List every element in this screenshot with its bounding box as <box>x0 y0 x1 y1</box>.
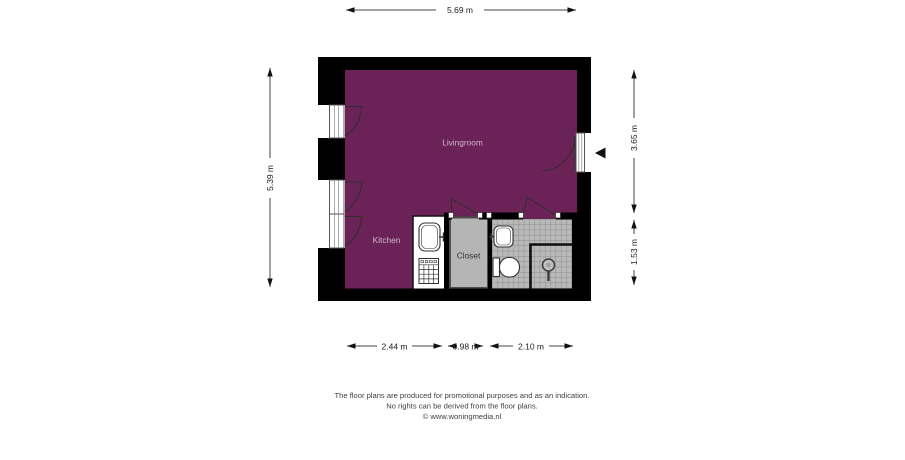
closet-label: Closet <box>457 251 481 261</box>
dimension-right-upper: 3.65 m <box>629 70 639 213</box>
footer-disclaimer: The floor plans are produced for promoti… <box>335 391 590 421</box>
floorplan-canvas: Livingroom Kitchen Closet 5.69 m 5.39 m … <box>0 0 905 460</box>
stove-icon <box>419 259 439 284</box>
toilet-icon <box>493 258 520 278</box>
dimension-bottom-right-label: 2.10 m <box>518 342 544 352</box>
wall-right-lower <box>577 172 591 301</box>
dimension-bottom-left-label: 2.44 m <box>382 342 408 352</box>
floorplan-page: Livingroom Kitchen Closet 5.69 m 5.39 m … <box>0 0 905 460</box>
dimension-right-upper-label: 3.65 m <box>629 125 639 151</box>
kitchen-counter <box>413 216 446 290</box>
kitchen-label: Kitchen <box>373 235 401 245</box>
bathroom <box>489 219 572 289</box>
wall-left-a <box>318 57 345 105</box>
livingroom-label: Livingroom <box>442 138 483 148</box>
dimension-bottom-middle: 0.98 m <box>448 342 483 352</box>
dimension-left: 5.39 m <box>265 68 275 287</box>
wall-top <box>318 57 591 70</box>
wall-left-b <box>318 138 345 180</box>
dimension-top-label: 5.69 m <box>447 5 473 15</box>
entrance-arrow-icon <box>595 148 606 159</box>
footer-line-2: No rights can be derived from the floor … <box>386 402 538 411</box>
footer-copyright: © www.woningmedia.nl <box>423 412 502 421</box>
dimension-left-label: 5.39 m <box>265 165 275 191</box>
dimension-top: 5.69 m <box>346 5 576 15</box>
dimension-bottom-left: 2.44 m <box>347 342 442 352</box>
footer-line-1: The floor plans are produced for promoti… <box>335 391 590 400</box>
dimension-bottom-right: 2.10 m <box>490 342 573 352</box>
wall-bottom <box>318 289 591 302</box>
wall-closet-bathroom <box>488 213 493 289</box>
wall-right-upper <box>577 57 591 133</box>
wall-left-c <box>318 248 345 301</box>
dimension-right-lower: 1.53 m <box>629 220 639 285</box>
dimension-bottom-middle-label: 0.98 m <box>453 342 479 352</box>
dimension-right-lower-label: 1.53 m <box>629 239 639 265</box>
